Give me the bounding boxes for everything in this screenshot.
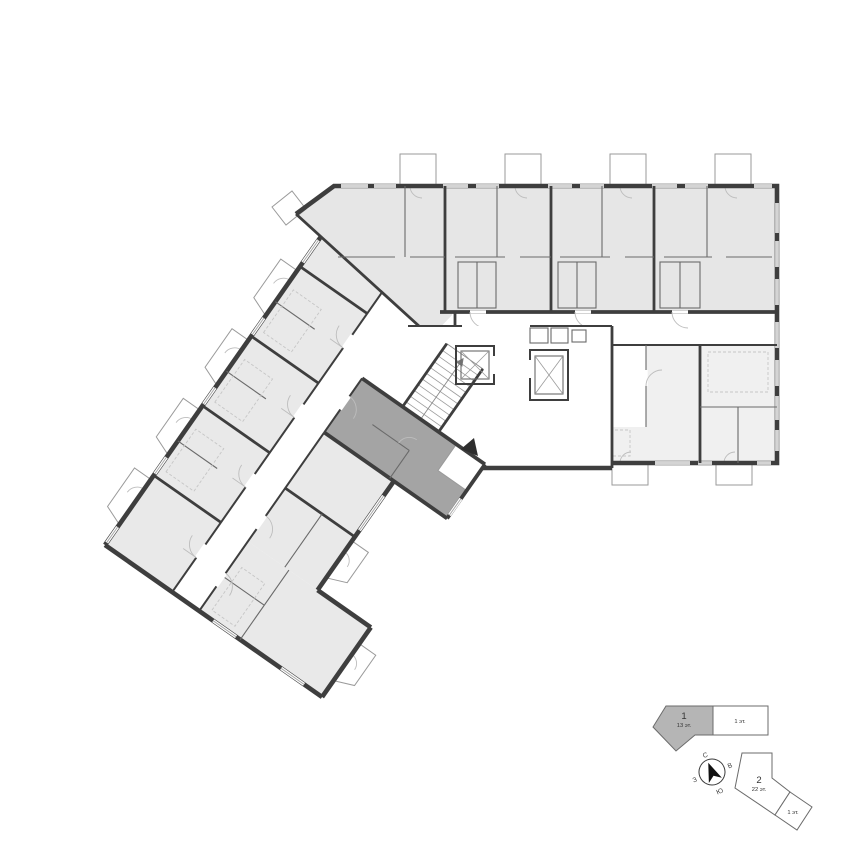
floorplan-canvas: 1 13 эт. 1 эт. С В Ю З 2 22 эт. 1 эт.: [0, 0, 864, 864]
compass-north-label: С: [702, 752, 709, 760]
compass-west-label: З: [692, 776, 698, 784]
compass-east-label: В: [727, 762, 734, 770]
legend-building-2-annex-label: 1 эт.: [787, 810, 799, 816]
legend-building-2-floors: 22 эт.: [752, 787, 767, 793]
legend-building-1-annex-label: 1 эт.: [734, 719, 746, 725]
legend-building-2-number: 2: [756, 775, 761, 786]
legend-building-1-floors: 13 эт.: [677, 723, 692, 729]
legend-building-1[interactable]: 1 13 эт.: [653, 706, 713, 751]
floorplan-page: 1 13 эт. 1 эт. С В Ю З 2 22 эт. 1 эт.: [0, 0, 864, 864]
legend-building-1-annex[interactable]: 1 эт.: [713, 706, 768, 735]
legend-building-1-number: 1: [681, 711, 686, 722]
site-legend: 1 13 эт. 1 эт. С В Ю З 2 22 эт. 1 эт.: [653, 706, 812, 830]
compass-south-label: Ю: [716, 787, 725, 796]
compass: С В Ю З: [685, 744, 742, 803]
